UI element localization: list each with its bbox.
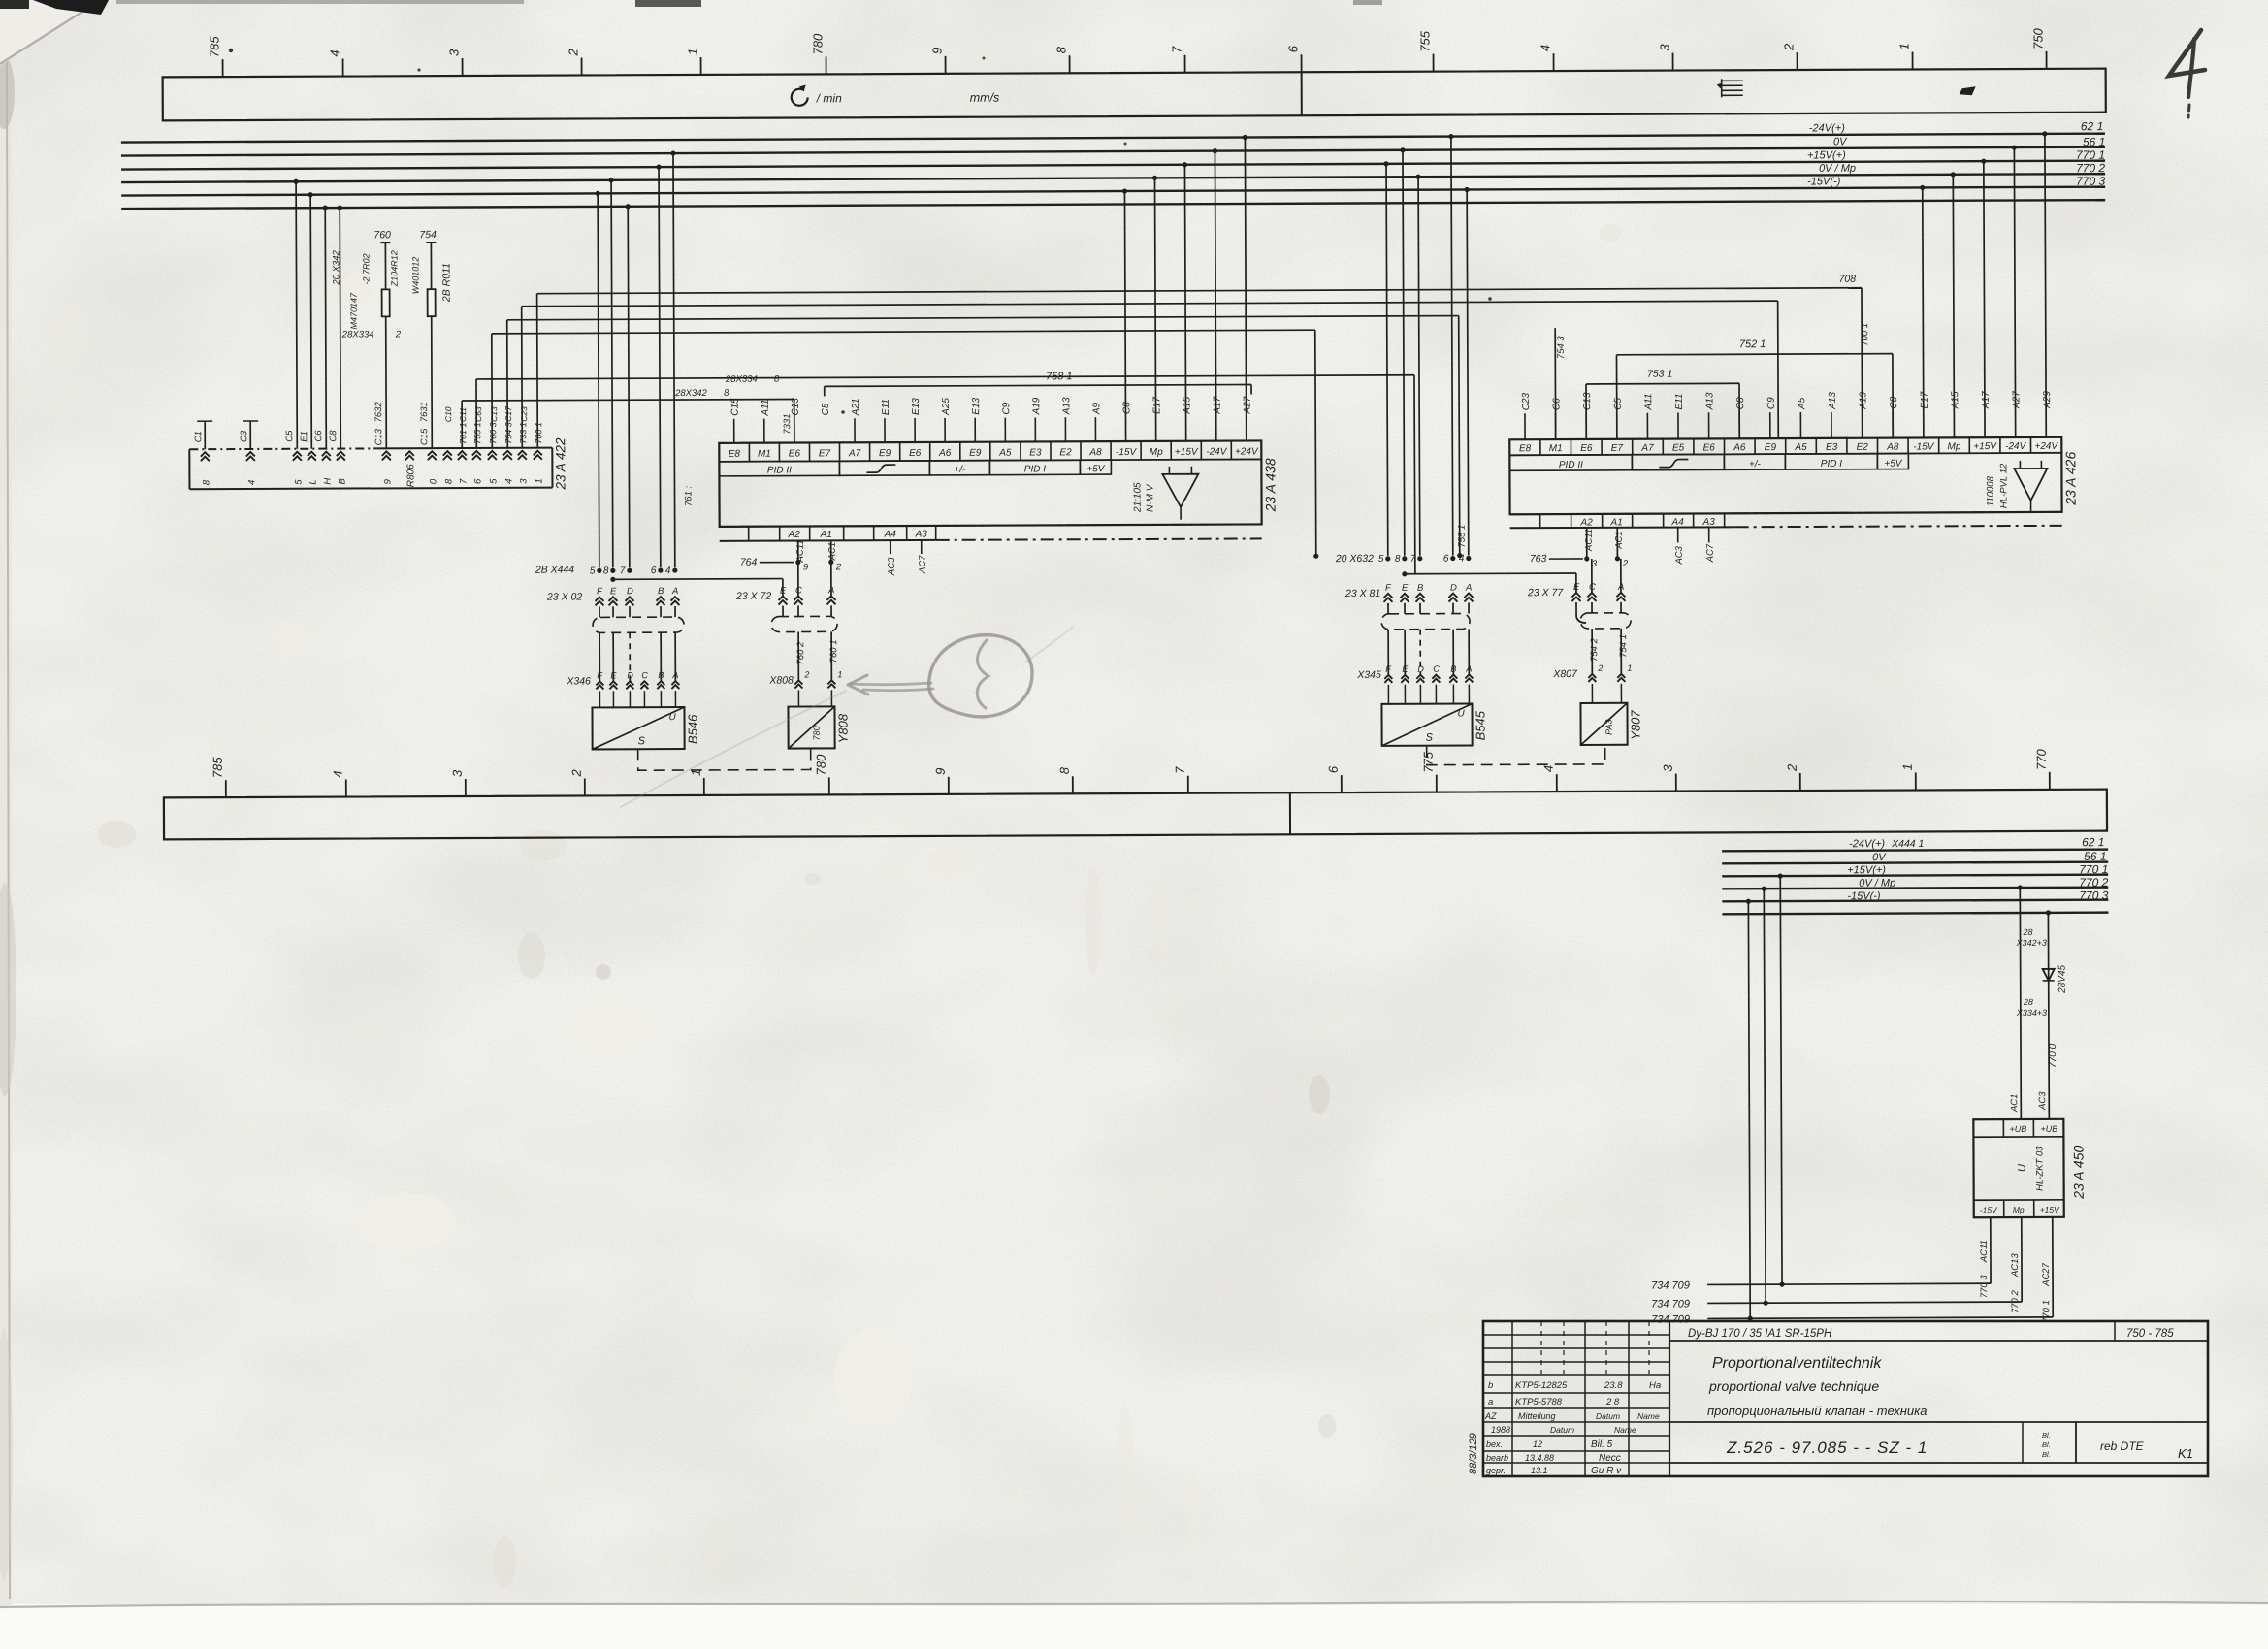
svg-text:8: 8	[724, 388, 729, 399]
svg-text:-15V: -15V	[1913, 441, 1935, 452]
svg-text:755 1: 755 1	[1457, 525, 1468, 548]
svg-text:E: E	[1402, 664, 1409, 674]
svg-text:760 1: 760 1	[828, 640, 839, 663]
svg-text:a: a	[1488, 1397, 1493, 1407]
svg-text:A3: A3	[1702, 517, 1716, 528]
svg-text:Gu R v: Gu R v	[1591, 1466, 1622, 1476]
svg-text:23 X 02: 23 X 02	[546, 591, 582, 602]
svg-text:23 A 450: 23 A 450	[2070, 1146, 2086, 1200]
svg-text:23 X 77: 23 X 77	[1527, 587, 1564, 598]
svg-text:X334+3: X334+3	[2016, 1008, 2047, 1018]
svg-text:B546: B546	[685, 714, 699, 744]
svg-text:E7: E7	[819, 448, 831, 459]
svg-text:4: 4	[328, 49, 342, 56]
svg-text:HL-PVL 12: HL-PVL 12	[1998, 463, 2009, 508]
svg-text:780: 780	[814, 754, 828, 776]
svg-text:D: D	[627, 586, 633, 597]
svg-text:X342+3: X342+3	[2016, 938, 2047, 948]
svg-text:754: 754	[419, 229, 437, 241]
svg-text:C15: C15	[730, 398, 741, 416]
svg-text:M1: M1	[758, 449, 771, 460]
svg-text:760: 760	[373, 229, 391, 241]
svg-text:A19: A19	[1858, 391, 1868, 409]
svg-text:4: 4	[1459, 554, 1465, 565]
svg-text:761 :: 761 :	[683, 485, 694, 506]
svg-text:E7: E7	[1611, 443, 1624, 454]
svg-text:E6: E6	[1580, 443, 1593, 454]
svg-text:785: 785	[207, 36, 221, 58]
svg-text:E6: E6	[789, 448, 801, 459]
svg-text:1988: 1988	[1491, 1425, 1510, 1435]
svg-text:9: 9	[933, 768, 948, 775]
svg-text:R806: R806	[405, 464, 416, 487]
svg-text:Bl.: Bl.	[2042, 1431, 2051, 1439]
svg-text:C13: C13	[489, 406, 499, 422]
svg-text:X807: X807	[1552, 668, 1578, 680]
svg-text:mm/s: mm/s	[970, 91, 1000, 105]
svg-text:23 A 438: 23 A 438	[1262, 458, 1278, 512]
svg-text:754 2: 754 2	[1589, 637, 1600, 662]
svg-text:C11: C11	[458, 407, 468, 422]
svg-text:62 1: 62 1	[2081, 119, 2103, 133]
svg-text:+/-: +/-	[1749, 459, 1762, 469]
svg-text:13.4.88: 13.4.88	[1525, 1453, 1554, 1463]
svg-text:B: B	[337, 478, 347, 485]
svg-text:D: D	[1450, 583, 1457, 594]
svg-text:13.1: 13.1	[1531, 1466, 1548, 1475]
svg-text:23 X 81: 23 X 81	[1345, 588, 1380, 599]
svg-text:770 2: 770 2	[2076, 161, 2105, 175]
svg-text:-24V(+): -24V(+)	[1809, 122, 1845, 134]
svg-text:0V / Mp: 0V / Mp	[1859, 878, 1895, 889]
svg-text:4: 4	[246, 480, 257, 485]
svg-text:пропорциональный клапан - тех: пропорциональный клапан - техника	[1707, 1404, 1927, 1418]
svg-text:758 1: 758 1	[1046, 371, 1073, 382]
svg-text:3: 3	[450, 769, 465, 777]
svg-text:7631: 7631	[419, 402, 430, 422]
svg-text:-15V: -15V	[1116, 447, 1138, 458]
svg-text:C13: C13	[373, 428, 384, 445]
svg-text:770 3: 770 3	[1979, 1275, 1990, 1299]
svg-text:AC11: AC11	[1584, 529, 1595, 552]
svg-text:E9: E9	[879, 448, 891, 459]
svg-text:28: 28	[2022, 927, 2032, 937]
svg-text:7: 7	[1410, 554, 1416, 565]
svg-text:N-M V: N-M V	[1145, 483, 1155, 512]
svg-text:733 1: 733 1	[518, 422, 528, 444]
svg-text:9: 9	[382, 478, 393, 484]
svg-text:763: 763	[1530, 553, 1547, 565]
svg-text:Name: Name	[1614, 1425, 1636, 1435]
svg-text:6: 6	[1285, 45, 1300, 52]
svg-text:D: D	[627, 670, 633, 680]
svg-text:E1: E1	[299, 431, 309, 442]
svg-text:28V45: 28V45	[2057, 964, 2068, 993]
svg-text:E8: E8	[729, 449, 741, 460]
svg-text:7: 7	[620, 566, 626, 576]
svg-text:Bl.: Bl.	[2042, 1440, 2051, 1449]
svg-text:785: 785	[211, 757, 225, 779]
svg-text:734 709: 734 709	[1651, 1314, 1690, 1326]
svg-text:B: B	[658, 586, 664, 597]
svg-text:-15V(-): -15V(-)	[1807, 176, 1841, 187]
svg-text:/ min: / min	[816, 91, 842, 105]
svg-text:754 3: 754 3	[503, 422, 513, 444]
svg-text:708: 708	[1839, 274, 1857, 285]
svg-text:F: F	[597, 670, 602, 680]
svg-text:S: S	[638, 735, 646, 747]
svg-text:A29: A29	[2042, 391, 2053, 409]
svg-text:28X334: 28X334	[725, 374, 758, 385]
svg-text:AC1: AC1	[827, 542, 838, 562]
svg-text:A7: A7	[848, 448, 861, 459]
svg-text:Proportionalventiltechnik: Proportionalventiltechnik	[1712, 1355, 1882, 1372]
svg-text:23 X 72: 23 X 72	[735, 591, 771, 602]
svg-text:M1: M1	[1549, 443, 1563, 454]
svg-text:AC13: AC13	[2010, 1253, 2021, 1278]
svg-text:6: 6	[1326, 765, 1341, 773]
svg-text:0V / Mp: 0V / Mp	[1819, 163, 1856, 175]
svg-text:23 A 422: 23 A 422	[553, 437, 567, 491]
svg-text:+15V(+): +15V(+)	[1807, 149, 1846, 161]
svg-text:E3: E3	[1826, 442, 1838, 453]
svg-text:A5: A5	[998, 448, 1012, 459]
svg-text:7: 7	[1169, 46, 1183, 53]
svg-text:A2: A2	[788, 530, 801, 540]
svg-text:28X342: 28X342	[674, 388, 708, 399]
svg-text:-24V(+): -24V(+)	[1849, 838, 1885, 850]
svg-text:2: 2	[395, 329, 402, 339]
svg-text:4: 4	[1541, 765, 1556, 772]
svg-text:2B R011: 2B R011	[440, 263, 452, 303]
svg-text:AC11: AC11	[1979, 1240, 1990, 1263]
svg-text:+5V: +5V	[1086, 464, 1105, 474]
svg-text:reb DTE: reb DTE	[2100, 1439, 2145, 1453]
svg-text:8: 8	[1057, 766, 1072, 774]
svg-text:gepr.: gepr.	[1486, 1466, 1506, 1475]
svg-text:E: E	[610, 586, 617, 597]
svg-text:-15V(-): -15V(-)	[1847, 890, 1881, 902]
svg-text:E13: E13	[971, 397, 982, 414]
svg-text:Bl.: Bl.	[2042, 1450, 2051, 1459]
svg-text:C5: C5	[821, 403, 831, 415]
svg-text:761 1: 761 1	[458, 422, 468, 444]
svg-text:6: 6	[651, 566, 657, 576]
svg-text:750 - 785: 750 - 785	[2126, 1328, 2174, 1340]
svg-text:E6: E6	[909, 448, 922, 459]
svg-text:9: 9	[803, 562, 809, 572]
svg-text:3: 3	[447, 48, 462, 56]
svg-text:A13: A13	[1828, 392, 1838, 410]
svg-text:S: S	[1426, 732, 1434, 744]
svg-text:A6: A6	[938, 448, 952, 459]
svg-text:C6: C6	[1551, 398, 1562, 410]
svg-text:bearb: bearb	[1486, 1453, 1508, 1463]
svg-text:770 1: 770 1	[2076, 148, 2105, 162]
svg-text:760 3: 760 3	[488, 422, 498, 444]
svg-text:PID I: PID I	[1821, 459, 1842, 469]
svg-text:E17: E17	[1151, 397, 1162, 414]
svg-text:b: b	[1488, 1380, 1493, 1391]
svg-text:+15V(+): +15V(+)	[1847, 864, 1886, 876]
svg-text:D: D	[1417, 664, 1424, 674]
svg-text:Ha: Ha	[1649, 1380, 1661, 1391]
svg-text:770 2: 770 2	[2079, 876, 2108, 889]
svg-text:Datum: Datum	[1550, 1425, 1574, 1435]
svg-text:+15V: +15V	[1973, 441, 1997, 452]
svg-text:A11: A11	[761, 400, 771, 417]
svg-text:23.8: 23.8	[1604, 1380, 1623, 1391]
svg-text:3: 3	[518, 478, 529, 484]
svg-text:A: A	[1465, 582, 1472, 593]
svg-text:760 2: 760 2	[795, 641, 806, 665]
svg-text:+/-: +/-	[954, 465, 966, 475]
svg-text:Dy-BJ 170 / 35 IA1 SR-15: Dy-BJ 170 / 35 IA1 SR-15PH	[1688, 1328, 1832, 1340]
svg-text:0V: 0V	[1833, 136, 1848, 147]
svg-text:1: 1	[534, 478, 544, 483]
svg-text:6: 6	[1443, 554, 1449, 565]
svg-text:C8: C8	[1735, 397, 1746, 409]
svg-text:8: 8	[603, 566, 609, 576]
svg-text:4: 4	[665, 566, 671, 576]
svg-text:C23: C23	[519, 406, 529, 422]
svg-text:-24V: -24V	[2005, 441, 2027, 452]
svg-text:A15: A15	[1950, 391, 1960, 409]
svg-text:X346: X346	[566, 675, 591, 687]
svg-text:1: 1	[1900, 763, 1915, 770]
svg-text:B: B	[658, 670, 664, 680]
svg-text:753 1: 753 1	[1647, 369, 1672, 380]
svg-text:AC27: AC27	[2041, 1262, 2052, 1287]
svg-text:C8: C8	[1121, 402, 1132, 414]
svg-text:A5: A5	[1794, 442, 1807, 453]
svg-text:2B X444: 2B X444	[535, 565, 574, 576]
svg-text:C10: C10	[443, 406, 453, 422]
svg-text:7: 7	[458, 478, 469, 484]
svg-text:4: 4	[331, 770, 345, 777]
svg-text:A13: A13	[1704, 392, 1715, 410]
svg-text:E2: E2	[1857, 442, 1869, 453]
svg-text:750: 750	[2030, 27, 2045, 49]
svg-text:H: H	[322, 478, 333, 485]
svg-text:28: 28	[2023, 997, 2033, 1007]
svg-text:A27: A27	[2011, 391, 2022, 409]
svg-text:X444 1: X444 1	[1891, 838, 1924, 850]
svg-text:E11: E11	[1674, 393, 1685, 409]
svg-text:AC1: AC1	[1614, 531, 1625, 550]
svg-text:Mitteilung: Mitteilung	[1518, 1411, 1556, 1421]
svg-text:5: 5	[293, 479, 304, 485]
svg-text:A4: A4	[1671, 517, 1685, 528]
svg-text:U: U	[668, 712, 676, 723]
svg-text:AZ: AZ	[1484, 1411, 1497, 1421]
svg-text:C9: C9	[1766, 397, 1777, 409]
svg-text:775: 775	[1421, 751, 1436, 773]
svg-text:700 1: 700 1	[1860, 323, 1870, 346]
svg-text:Mp: Mp	[2013, 1205, 2025, 1214]
svg-text:110008: 110008	[1985, 475, 1995, 506]
svg-text:5: 5	[590, 566, 596, 576]
svg-text:12: 12	[1533, 1439, 1542, 1449]
svg-text:5: 5	[488, 478, 499, 484]
svg-text:20 X342: 20 X342	[331, 249, 341, 285]
svg-text:2: 2	[1781, 43, 1796, 51]
svg-text:Y808: Y808	[835, 713, 850, 743]
svg-text:E: E	[1402, 583, 1409, 594]
svg-text:KTP5-5788: KTP5-5788	[1515, 1397, 1563, 1407]
svg-text:C23: C23	[1521, 392, 1532, 410]
svg-text:88/3/129: 88/3/129	[1468, 1433, 1479, 1474]
svg-text:+24V: +24V	[1235, 446, 1259, 457]
svg-text:C5: C5	[284, 430, 295, 442]
svg-text:734 709: 734 709	[1651, 1299, 1690, 1310]
svg-text:+UB: +UB	[2009, 1124, 2026, 1134]
svg-text:E8: E8	[1519, 443, 1532, 454]
svg-text:-24V: -24V	[1206, 447, 1228, 458]
svg-text:E: E	[610, 670, 617, 680]
svg-text:3: 3	[1657, 44, 1671, 51]
svg-text:6: 6	[472, 478, 483, 484]
svg-text:C6: C6	[313, 430, 324, 442]
svg-text:2: 2	[835, 562, 842, 572]
svg-text:A17: A17	[1213, 396, 1223, 414]
svg-text:Z.526 - 97.085 - - SZ - 1: Z.526 - 97.085 - - SZ - 1	[1726, 1439, 1928, 1457]
svg-text:+UB: +UB	[2040, 1124, 2057, 1134]
svg-text:C: C	[641, 670, 648, 680]
svg-text:0V: 0V	[1872, 852, 1887, 863]
svg-text:2: 2	[1597, 663, 1603, 673]
svg-text:C: C	[1433, 664, 1440, 674]
svg-text:Necc: Necc	[1599, 1453, 1621, 1464]
svg-text:C13: C13	[1582, 392, 1593, 410]
svg-text:770: 770	[2034, 748, 2049, 770]
svg-text:C5: C5	[1613, 398, 1624, 410]
svg-text:770 3: 770 3	[2079, 889, 2108, 902]
svg-text:C8: C8	[1889, 396, 1899, 408]
svg-text:AC1: AC1	[2009, 1094, 2020, 1114]
svg-text:754 1: 754 1	[1618, 634, 1629, 658]
svg-text:8: 8	[1395, 554, 1401, 565]
svg-text:755: 755	[1417, 30, 1432, 52]
svg-text:770 2: 770 2	[2010, 1290, 2021, 1314]
svg-text:780: 780	[810, 33, 825, 55]
svg-text:A21: A21	[851, 398, 861, 416]
svg-text:754 3: 754 3	[1556, 336, 1567, 360]
svg-text:7331: 7331	[782, 413, 793, 434]
svg-text:4: 4	[503, 478, 514, 483]
svg-text:5: 5	[1378, 554, 1384, 565]
svg-text:-15V: -15V	[1980, 1205, 1998, 1214]
svg-text:AC3: AC3	[887, 557, 897, 576]
svg-text:734 709: 734 709	[1651, 1280, 1690, 1292]
svg-text:C15: C15	[419, 428, 430, 445]
svg-text:E13: E13	[911, 398, 922, 415]
svg-text:A1: A1	[820, 530, 832, 540]
svg-text:770 1: 770 1	[2079, 862, 2108, 876]
svg-text:20 X632: 20 X632	[1335, 553, 1374, 565]
svg-text:A19: A19	[1031, 397, 1042, 415]
svg-text:A8: A8	[1886, 442, 1899, 453]
svg-text:2: 2	[1785, 763, 1799, 772]
svg-text:PID II: PID II	[1559, 460, 1583, 470]
svg-text:1: 1	[837, 669, 842, 679]
svg-text:1: 1	[686, 48, 700, 55]
svg-text:A27: A27	[1243, 396, 1253, 414]
svg-text:770 0: 770 0	[2048, 1043, 2058, 1068]
svg-text:A25: A25	[941, 398, 952, 416]
svg-text:8: 8	[443, 478, 454, 484]
svg-text:proportional valve technique: proportional valve technique	[1708, 1378, 1879, 1394]
svg-text:8: 8	[774, 374, 780, 385]
svg-text:AC7: AC7	[1705, 543, 1716, 563]
svg-text:A: A	[671, 670, 678, 680]
svg-text:780: 780	[812, 726, 822, 740]
svg-text:E: E	[780, 586, 787, 597]
svg-text:62 1: 62 1	[2082, 835, 2104, 849]
svg-text:+24V: +24V	[2034, 441, 2058, 452]
svg-text:A5: A5	[1797, 397, 1807, 410]
svg-text:E17: E17	[1920, 391, 1930, 408]
svg-text:AC11: AC11	[795, 539, 806, 563]
svg-text:C17: C17	[503, 406, 513, 422]
svg-text:HL-ZKT 03: HL-ZKT 03	[2034, 1146, 2045, 1191]
svg-text:A3: A3	[915, 529, 928, 539]
svg-text:B545: B545	[1473, 710, 1487, 740]
svg-text:Y807: Y807	[1628, 710, 1642, 740]
svg-text:C9: C9	[1001, 402, 1012, 414]
svg-text:Mp: Mp	[1948, 441, 1961, 452]
svg-text:PID I: PID I	[1024, 464, 1046, 474]
svg-text:+5V: +5V	[1884, 459, 1902, 469]
svg-text:A: A	[1465, 663, 1472, 673]
svg-text:B: B	[1450, 664, 1456, 674]
svg-text:2: 2	[803, 669, 809, 679]
svg-text:C13: C13	[791, 398, 801, 416]
svg-text:C1: C1	[193, 431, 204, 442]
svg-text:E2: E2	[1059, 447, 1072, 458]
svg-text:7632: 7632	[373, 402, 384, 423]
svg-text:1: 1	[1627, 663, 1632, 673]
svg-text:AC3: AC3	[2037, 1091, 2048, 1111]
svg-text:E6: E6	[1703, 442, 1716, 453]
svg-text:2: 2	[567, 48, 581, 56]
svg-text:C8: C8	[328, 430, 339, 442]
svg-text:E11: E11	[881, 399, 891, 415]
svg-text:28X334: 28X334	[341, 329, 374, 339]
svg-text:L: L	[308, 479, 318, 484]
svg-text:E9: E9	[1765, 442, 1777, 453]
svg-text:E3: E3	[1029, 447, 1042, 458]
svg-text:764: 764	[740, 557, 758, 568]
svg-text:Z104R12: Z104R12	[389, 250, 399, 287]
svg-text:A17: A17	[1981, 391, 1992, 409]
svg-text:-2 7R02: -2 7R02	[361, 253, 371, 284]
svg-text:752 1: 752 1	[1739, 339, 1766, 350]
svg-text:U: U	[2017, 1164, 2028, 1172]
svg-text:A2: A2	[1580, 517, 1594, 528]
svg-text:A8: A8	[1088, 447, 1102, 458]
svg-text:A11: A11	[1643, 394, 1654, 411]
svg-text:X808: X808	[768, 675, 794, 687]
svg-text:3: 3	[1592, 559, 1598, 569]
svg-text:21:105: 21:105	[1132, 482, 1143, 513]
svg-text:M470147: M470147	[349, 292, 359, 330]
svg-text:K1: K1	[2178, 1446, 2193, 1461]
svg-text:8: 8	[1053, 46, 1068, 53]
svg-text:8: 8	[201, 479, 211, 485]
svg-text:PA3: PA3	[1604, 720, 1614, 735]
svg-text:56 1: 56 1	[2083, 135, 2105, 148]
